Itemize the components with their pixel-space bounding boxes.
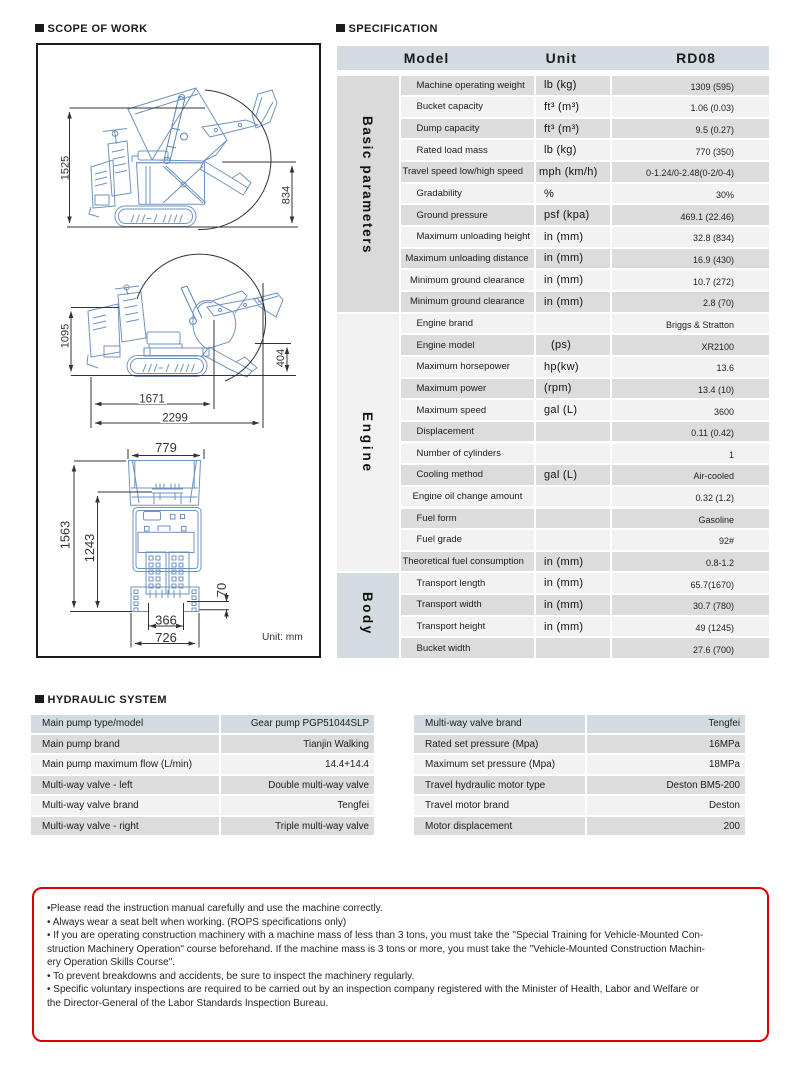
svg-text:834: 834 [281, 186, 293, 204]
svg-text:1563: 1563 [58, 521, 73, 549]
svg-text:70: 70 [214, 583, 229, 597]
svg-text:1243: 1243 [82, 534, 97, 562]
svg-text:779: 779 [155, 440, 177, 455]
svg-text:1671: 1671 [139, 394, 165, 406]
svg-text:366: 366 [155, 613, 177, 628]
svg-text:1095: 1095 [60, 324, 72, 348]
svg-text:726: 726 [155, 630, 177, 645]
svg-text:2299: 2299 [162, 413, 188, 425]
svg-text:1525: 1525 [60, 156, 72, 180]
svg-text:Unit: mm: Unit: mm [262, 632, 303, 643]
svg-text:404: 404 [275, 349, 287, 367]
